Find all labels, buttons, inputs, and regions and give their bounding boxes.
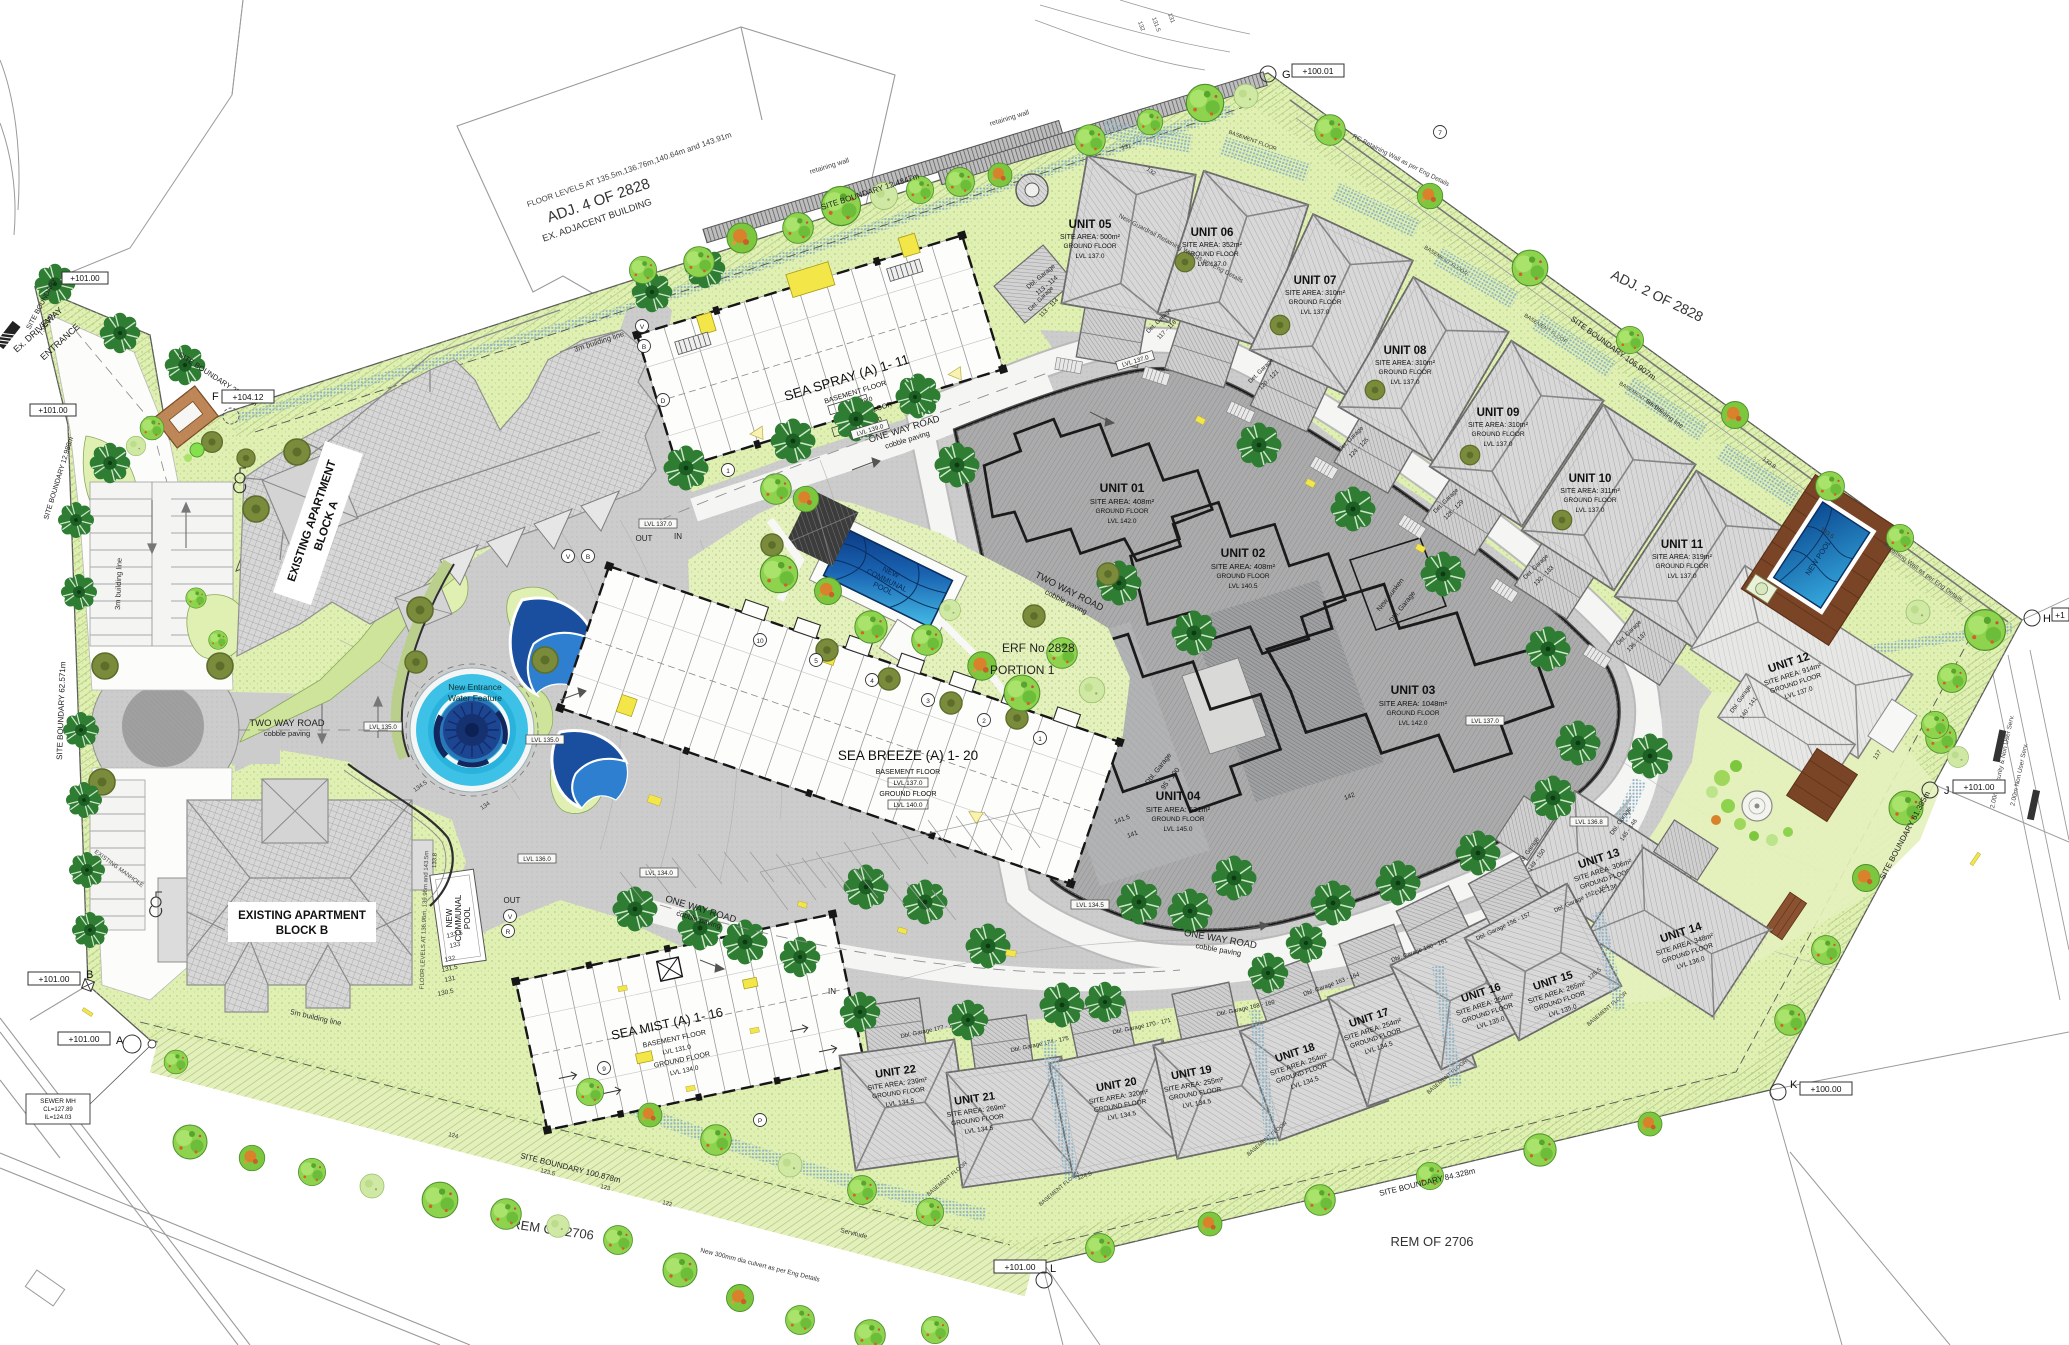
svg-text:GROUND FLOOR: GROUND FLOOR: [1563, 497, 1616, 504]
svg-text:L: L: [1050, 1263, 1056, 1275]
svg-text:SITE AREA: 310m²: SITE AREA: 310m²: [1285, 290, 1346, 297]
svg-text:SITE AREA: 531m²: SITE AREA: 531m²: [1146, 805, 1211, 814]
svg-text:SITE AREA: 352m²: SITE AREA: 352m²: [1182, 242, 1243, 249]
svg-text:+1: +1: [2055, 610, 2065, 620]
svg-text:IN: IN: [828, 987, 836, 996]
svg-text:GROUND FLOOR: GROUND FLOOR: [1151, 816, 1204, 823]
svg-text:+101.00: +101.00: [70, 274, 100, 283]
svg-text:Water Feature: Water Feature: [448, 693, 502, 703]
svg-text:LVL 145.0: LVL 145.0: [1164, 826, 1193, 833]
svg-text:UNIT 06: UNIT 06: [1191, 227, 1234, 239]
svg-text:EXISTING APARTMENT: EXISTING APARTMENT: [238, 910, 366, 922]
svg-text:B: B: [642, 344, 646, 351]
svg-text:LVL 137.0: LVL 137.0: [1668, 573, 1697, 580]
svg-text:SITE AREA: 1048m²: SITE AREA: 1048m²: [1379, 699, 1448, 708]
svg-text:UNIT 05: UNIT 05: [1069, 219, 1112, 231]
svg-text:GROUND FLOOR: GROUND FLOOR: [1288, 299, 1341, 306]
svg-text:LVL 137.0: LVL 137.0: [1391, 379, 1420, 386]
svg-text:V: V: [640, 324, 645, 331]
svg-text:J: J: [1944, 785, 1950, 797]
svg-text:BASEMENT FLOOR: BASEMENT FLOOR: [876, 769, 940, 776]
svg-text:F: F: [212, 391, 219, 403]
svg-text:G: G: [1282, 69, 1291, 81]
svg-text:LVL 137.0: LVL 137.0: [1484, 441, 1513, 448]
svg-text:LVL 136.8: LVL 136.8: [1575, 819, 1603, 826]
svg-text:GROUND FLOOR: GROUND FLOOR: [1216, 573, 1269, 580]
svg-text:SEA BREEZE (A) 1- 20: SEA BREEZE (A) 1- 20: [838, 748, 978, 763]
svg-text:LVL 137.0: LVL 137.0: [644, 521, 672, 528]
svg-text:LVL 142.0: LVL 142.0: [1108, 518, 1137, 525]
svg-text:UNIT 07: UNIT 07: [1294, 275, 1337, 287]
svg-text:1: 1: [726, 468, 730, 475]
svg-text:5: 5: [814, 658, 818, 665]
svg-text:R: R: [506, 929, 511, 936]
svg-text:9: 9: [602, 1066, 606, 1073]
svg-text:K: K: [1790, 1079, 1798, 1091]
svg-text:SITE AREA: 311m²: SITE AREA: 311m²: [1560, 488, 1620, 495]
svg-text:UNIT 10: UNIT 10: [1569, 473, 1612, 485]
svg-text:4: 4: [870, 678, 874, 685]
svg-text:LVL 134.5: LVL 134.5: [1076, 902, 1104, 909]
svg-text:LVL 137.0: LVL 137.0: [1471, 718, 1499, 725]
svg-text:OUT: OUT: [636, 534, 653, 543]
svg-text:B: B: [586, 554, 590, 561]
svg-text:PORTION 1: PORTION 1: [990, 663, 1055, 677]
svg-text:SEWER MH: SEWER MH: [40, 1098, 76, 1105]
svg-text:ERF No 2828: ERF No 2828: [1002, 641, 1075, 655]
svg-text:+101.00: +101.00: [39, 974, 70, 984]
svg-text:+101.00: +101.00: [1005, 1262, 1036, 1272]
svg-text:3: 3: [926, 698, 930, 705]
svg-text:UNIT 11: UNIT 11: [1661, 539, 1704, 551]
svg-text:GROUND FLOOR: GROUND FLOOR: [1655, 563, 1708, 570]
svg-text:GROUND FLOOR: GROUND FLOOR: [1471, 431, 1524, 438]
svg-text:LVL 140.5: LVL 140.5: [1229, 583, 1258, 590]
svg-text:LVL 136.0: LVL 136.0: [523, 856, 551, 863]
svg-text:H: H: [2043, 613, 2051, 625]
svg-text:GROUND FLOOR: GROUND FLOOR: [879, 791, 936, 798]
svg-text:REM OF 2706: REM OF 2706: [1390, 1234, 1473, 1249]
svg-text:NEW: NEW: [445, 908, 454, 927]
svg-text:GROUND FLOOR: GROUND FLOOR: [1378, 369, 1431, 376]
svg-text:133.8: 133.8: [432, 852, 439, 868]
svg-text:IL=124.03: IL=124.03: [45, 1115, 73, 1121]
svg-text:P: P: [758, 1118, 762, 1125]
svg-text:LVL 134.0: LVL 134.0: [645, 870, 673, 877]
svg-text:UNIT 08: UNIT 08: [1384, 345, 1427, 357]
svg-text:3m building line: 3m building line: [113, 558, 124, 610]
svg-text:UNIT 02: UNIT 02: [1221, 546, 1266, 560]
svg-text:+101.00: +101.00: [38, 406, 68, 415]
svg-text:GROUND FLOOR: GROUND FLOOR: [1063, 243, 1116, 250]
svg-text:UNIT 03: UNIT 03: [1391, 683, 1436, 697]
svg-text:LVL 142.0: LVL 142.0: [1399, 720, 1428, 727]
svg-text:CL=127.89: CL=127.89: [43, 1107, 73, 1113]
svg-text:GROUND FLOOR: GROUND FLOOR: [1095, 508, 1148, 515]
svg-text:LVL 137.0: LVL 137.0: [1301, 309, 1330, 316]
svg-text:2: 2: [982, 718, 986, 725]
svg-text:V: V: [566, 554, 571, 561]
svg-text:SITE AREA: 408m²: SITE AREA: 408m²: [1211, 562, 1276, 571]
svg-text:+100.01: +100.01: [1303, 66, 1334, 76]
svg-text:UNIT 04: UNIT 04: [1156, 789, 1201, 803]
svg-text:LVL 137.0: LVL 137.0: [1576, 507, 1605, 514]
svg-text:BLOCK B: BLOCK B: [276, 925, 328, 937]
svg-text:SITE AREA: 500m²: SITE AREA: 500m²: [1060, 234, 1121, 241]
svg-text:D: D: [661, 398, 666, 405]
svg-text:UNIT 01: UNIT 01: [1100, 481, 1145, 495]
svg-text:GROUND FLOOR: GROUND FLOOR: [1386, 710, 1439, 717]
svg-text:New Entrance: New Entrance: [448, 682, 502, 692]
svg-text:POOL: POOL: [463, 906, 472, 929]
svg-text:LVL 140.0: LVL 140.0: [894, 802, 923, 809]
svg-text:1: 1: [1038, 736, 1042, 743]
svg-text:+101.00: +101.00: [1964, 782, 1995, 792]
svg-text:7: 7: [1438, 130, 1442, 137]
svg-text:OUT: OUT: [504, 896, 521, 905]
svg-text:SITE AREA: 310m²: SITE AREA: 310m²: [1375, 360, 1436, 367]
svg-text:LVL 137.0: LVL 137.0: [1076, 253, 1105, 260]
svg-text:LVL 135.0: LVL 135.0: [531, 737, 559, 744]
svg-text:SITE AREA: 310m²: SITE AREA: 310m²: [1468, 422, 1529, 429]
svg-text:LVL 137.0: LVL 137.0: [894, 780, 923, 787]
svg-text:V: V: [508, 914, 513, 921]
svg-text:+104.12: +104.12: [233, 392, 264, 402]
svg-text:SITE AREA: 319m²: SITE AREA: 319m²: [1652, 554, 1713, 561]
svg-text:10: 10: [756, 638, 764, 645]
svg-text:+101.00: +101.00: [69, 1034, 100, 1044]
svg-text:TWO WAY ROAD: TWO WAY ROAD: [249, 718, 324, 729]
svg-text:+100.00: +100.00: [1811, 1084, 1842, 1094]
svg-text:SITE AREA: 408m²: SITE AREA: 408m²: [1090, 497, 1155, 506]
svg-text:IN: IN: [674, 532, 682, 541]
svg-text:UNIT 09: UNIT 09: [1477, 407, 1520, 419]
